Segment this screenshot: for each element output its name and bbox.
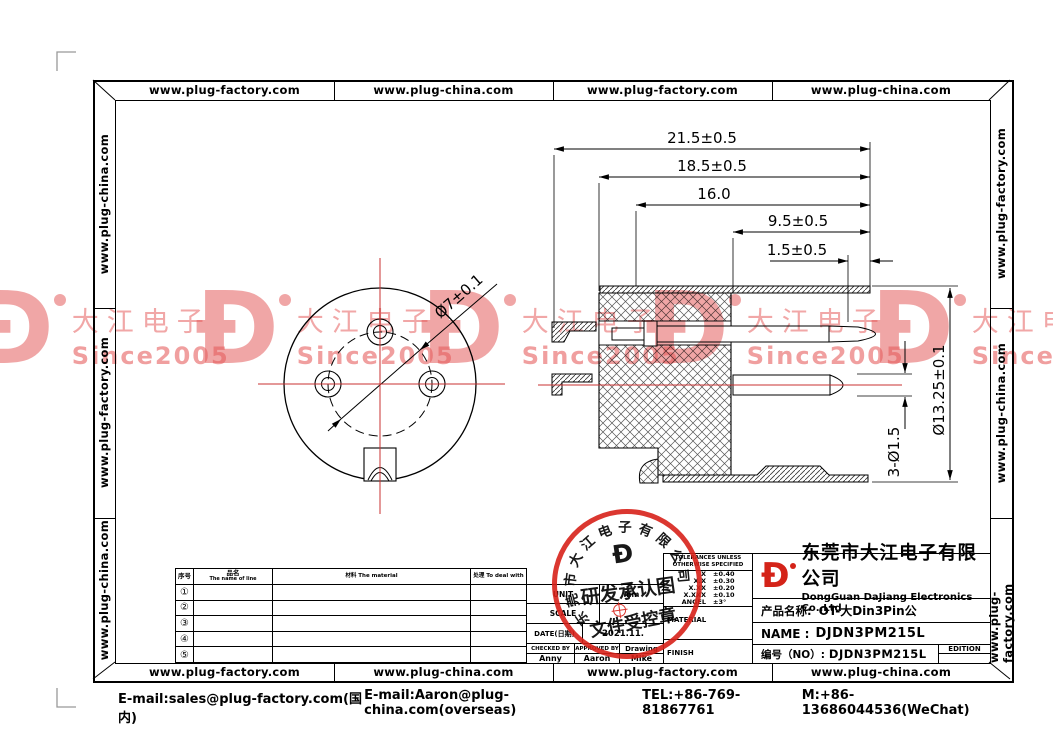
web-band-left-2: www.plug-factory.com [93, 308, 115, 519]
product-name-row: 产品名称: OT-大Din3Pin公 [752, 598, 990, 622]
parts-col-name-en: The name of line [209, 577, 256, 583]
dim-body-length: 18.5±0.5 [677, 157, 747, 175]
web-text: www.plug-factory.com [97, 337, 111, 488]
web-band-bottom-1: www.plug-factory.com [115, 663, 335, 681]
dim-front-length: 9.5±0.5 [768, 212, 828, 230]
footer-mobile: M:+86-13686044536(WeChat) [802, 688, 1008, 726]
company-name-cn: 东莞市大江电子有限公司 [802, 539, 991, 591]
dim-tip-length: 1.5±0.5 [767, 241, 827, 259]
web-text: www.plug-factory.com [149, 83, 300, 97]
parts-col-seq: 序号 [176, 569, 194, 585]
part-number-row: 编号（NO）: DJDN3PM215L [752, 644, 938, 663]
web-text: www.plug-factory.com [987, 518, 1015, 663]
parts-cell [273, 585, 471, 601]
web-band-top-3: www.plug-factory.com [553, 80, 773, 100]
stamp-line2: 文件受控章 [588, 604, 678, 641]
approval-stamp: 东莞市大江电子有限公司 Ð 研发承认图 文件受控章 [542, 499, 711, 668]
footer-email-domestic: E-mail:sales@plug-factory.com(国内) [118, 688, 364, 726]
front-view: Ø7±0.1 [284, 270, 497, 481]
tol-value: ±3° [706, 599, 726, 606]
dim-shell-diameter: Ø13.25±0.1 [930, 344, 948, 435]
crimp-tab-upper [552, 322, 596, 342]
parts-cell [273, 616, 471, 632]
parts-col-treatment: 处理 To deal with [471, 569, 526, 585]
approval-stamp-art: 东莞市大江电子有限公司 Ð 研发承认图 文件受控章 [548, 505, 706, 663]
company-header: Ð 东莞市大江电子有限公司 DongGuan DaJiang Electroni… [752, 553, 990, 598]
web-band-top-4: www.plug-china.com [772, 80, 990, 100]
parts-table: 序号 品名 The name of line 材料 The material 处… [175, 568, 527, 663]
dajiang-logo-icon: Ð [761, 561, 790, 592]
sheet-crop-marks [57, 52, 76, 707]
parts-cell [194, 616, 273, 632]
web-band-left-1: www.plug-china.com [93, 100, 115, 309]
web-text: www.plug-china.com [97, 520, 111, 660]
edition-label: EDITION [948, 645, 980, 653]
drawing-sheet: www.plug-factory.com www.plug-china.com … [0, 0, 1053, 744]
dim-mid-length: 16.0 [697, 185, 730, 203]
parts-col-name: 品名 The name of line [194, 569, 273, 585]
web-band-right-2: www.plug-china.com [990, 308, 1012, 519]
parts-cell [273, 601, 471, 617]
part-number-value: DJDN3PM215L [829, 647, 927, 661]
parts-cell [194, 601, 273, 617]
finish-label: FINISH [664, 649, 694, 657]
parts-cell [471, 601, 526, 617]
web-band-top-2: www.plug-china.com [334, 80, 554, 100]
web-band-bottom-4: www.plug-china.com [772, 663, 990, 681]
dim-pin-diameter: 3-Ø1.5 [885, 427, 903, 478]
parts-cell [471, 647, 526, 663]
product-name-label: 产品名称: [761, 603, 812, 619]
edition-value-cell [938, 654, 990, 663]
dim-total-length: 21.5±0.5 [667, 129, 737, 147]
parts-row-seq: ④ [176, 632, 194, 648]
web-text: www.plug-china.com [811, 665, 951, 679]
web-band-bottom-3: www.plug-factory.com [553, 663, 773, 681]
web-text: www.plug-factory.com [587, 83, 738, 97]
footer-tel: TEL:+86-769-81867761 [642, 688, 802, 726]
part-number-label: 编号（NO）: [761, 647, 825, 662]
parts-cell [273, 647, 471, 663]
parts-cell [194, 632, 273, 648]
insulator-body [599, 293, 731, 475]
web-text: www.plug-china.com [373, 665, 513, 679]
edition-cell: EDITION [938, 644, 990, 654]
stamp-logo-icon: Ð [610, 538, 635, 570]
footer-contacts: E-mail:sales@plug-factory.com(国内) E-mail… [118, 688, 1008, 726]
model-name-row: NAME : DJDN3PM215L [752, 622, 990, 644]
web-text: www.plug-china.com [811, 83, 951, 97]
parts-row-seq: ⑤ [176, 647, 194, 663]
parts-cell [273, 632, 471, 648]
dim-bolt-circle: Ø7±0.1 [431, 270, 486, 321]
web-text: www.plug-china.com [994, 343, 1008, 483]
parts-cell [471, 632, 526, 648]
model-name-label: NAME : [761, 627, 809, 641]
web-band-bottom-2: www.plug-china.com [334, 663, 554, 681]
web-text: www.plug-factory.com [587, 665, 738, 679]
product-name-value: OT-大Din3Pin公 [819, 602, 917, 619]
parts-cell [471, 585, 526, 601]
web-band-right-1: www.plug-factory.com [990, 100, 1012, 309]
parts-row-seq: ① [176, 585, 194, 601]
web-text: www.plug-china.com [97, 134, 111, 274]
parts-cell [471, 616, 526, 632]
parts-cell [194, 585, 273, 601]
web-text: www.plug-china.com [373, 83, 513, 97]
web-band-top-1: www.plug-factory.com [115, 80, 335, 100]
model-name-value: DJDN3PM215L [815, 626, 925, 641]
insulator-tab [639, 459, 658, 483]
web-band-left-3: www.plug-china.com [93, 518, 115, 663]
parts-row-seq: ② [176, 601, 194, 617]
stamp-line1: 研发承认图 [579, 573, 676, 609]
parts-row-seq: ③ [176, 616, 194, 632]
center-pin [612, 321, 876, 346]
web-band-right-3: www.plug-factory.com [990, 518, 1012, 663]
web-text: www.plug-factory.com [149, 665, 300, 679]
footer-email-overseas: E-mail:Aaron@plug-china.com(overseas) [364, 688, 642, 726]
shell-top [600, 286, 870, 293]
parts-col-material: 材料 The material [273, 569, 471, 585]
web-text: www.plug-factory.com [994, 128, 1008, 279]
parts-cell [194, 647, 273, 663]
